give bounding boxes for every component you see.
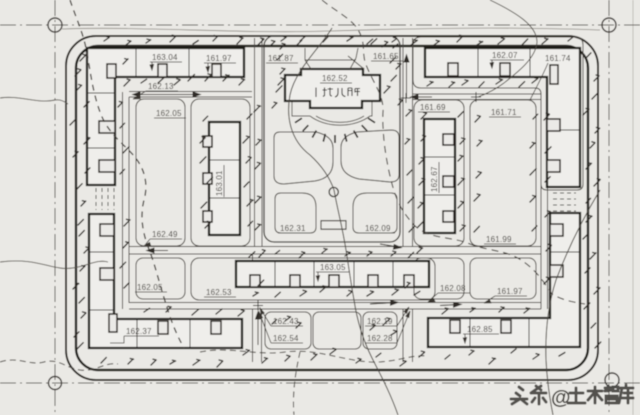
svg-text:161.87: 161.87 xyxy=(268,54,294,63)
svg-text:161.65: 161.65 xyxy=(373,52,399,61)
svg-text:161.97: 161.97 xyxy=(497,287,523,296)
svg-text:161.74: 161.74 xyxy=(545,54,571,63)
svg-text:162.08: 162.08 xyxy=(440,284,466,293)
svg-text:162.05: 162.05 xyxy=(156,109,182,118)
svg-text:162.85: 162.85 xyxy=(467,325,493,334)
svg-text:162.09: 162.09 xyxy=(365,224,391,233)
svg-text:161.99: 161.99 xyxy=(486,235,512,244)
svg-text:162.05: 162.05 xyxy=(137,283,163,292)
svg-text:162.19: 162.19 xyxy=(367,317,393,326)
svg-text:161.97: 161.97 xyxy=(206,54,232,63)
svg-text:163.05: 163.05 xyxy=(320,263,346,272)
svg-text:162.43: 162.43 xyxy=(273,317,299,326)
svg-text:162.67: 162.67 xyxy=(430,166,439,192)
svg-text:162.07: 162.07 xyxy=(492,51,518,60)
svg-text:162.13: 162.13 xyxy=(148,82,174,91)
svg-text:162.31: 162.31 xyxy=(280,224,306,233)
svg-text:163.01: 163.01 xyxy=(215,170,224,196)
svg-text:162.54: 162.54 xyxy=(273,334,299,343)
svg-text:162.49: 162.49 xyxy=(152,230,178,239)
svg-text:162.52: 162.52 xyxy=(322,74,348,83)
svg-text:162.28: 162.28 xyxy=(367,334,393,343)
svg-text:163.04: 163.04 xyxy=(152,53,178,62)
svg-text:162.37: 162.37 xyxy=(126,327,152,336)
svg-text:161.71: 161.71 xyxy=(491,108,517,117)
svg-text:@: @ xyxy=(551,387,571,409)
svg-text:162.53: 162.53 xyxy=(206,288,232,297)
svg-text:161.69: 161.69 xyxy=(420,103,446,112)
